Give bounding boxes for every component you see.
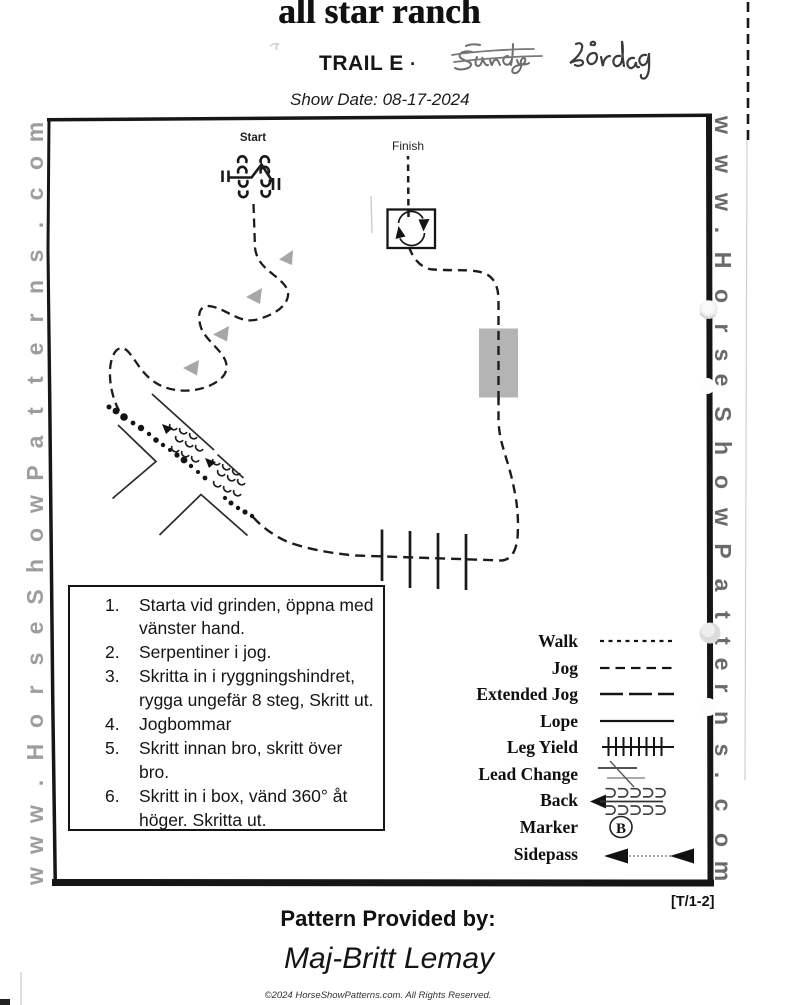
svg-text:Jog: Jog [552, 658, 579, 678]
svg-text:Leg Yield: Leg Yield [507, 737, 578, 757]
svg-text:Lope: Lope [540, 711, 578, 731]
svg-text:Lead Change: Lead Change [478, 764, 578, 784]
svg-text:Sidepass: Sidepass [514, 844, 578, 864]
svg-text:B: B [616, 821, 626, 837]
svg-text:Marker: Marker [520, 817, 579, 837]
svg-text:Extended Jog: Extended Jog [476, 684, 578, 704]
svg-text:Back: Back [540, 790, 578, 810]
svg-text:Walk: Walk [538, 631, 578, 651]
svg-text:Start: Start [240, 132, 266, 144]
svg-text:Finish: Finish [392, 139, 424, 153]
